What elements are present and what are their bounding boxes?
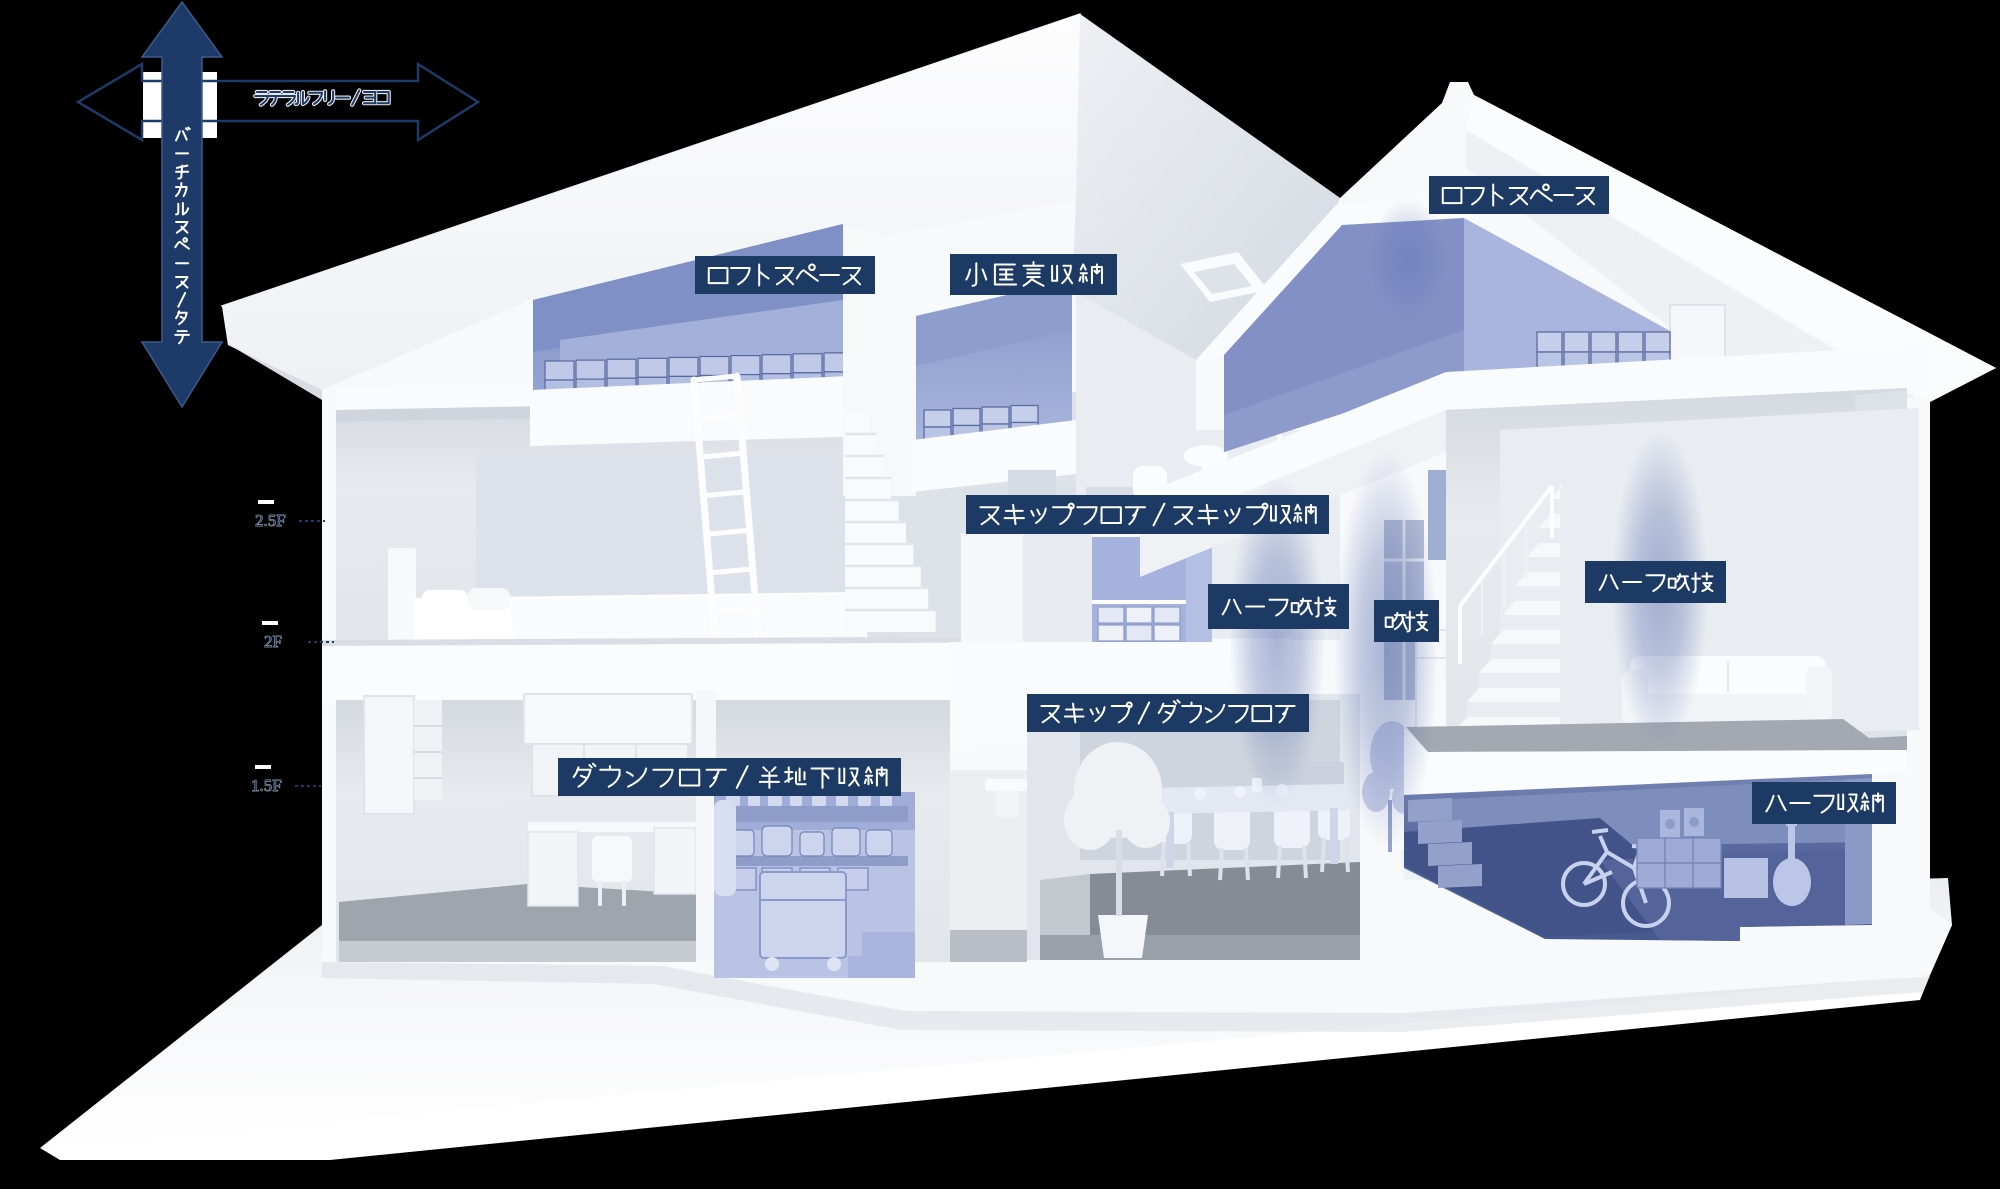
svg-text:1.5F: 1.5F	[251, 776, 282, 795]
svg-text:2F: 2F	[264, 632, 282, 651]
svg-text:2.5F: 2.5F	[255, 511, 286, 530]
